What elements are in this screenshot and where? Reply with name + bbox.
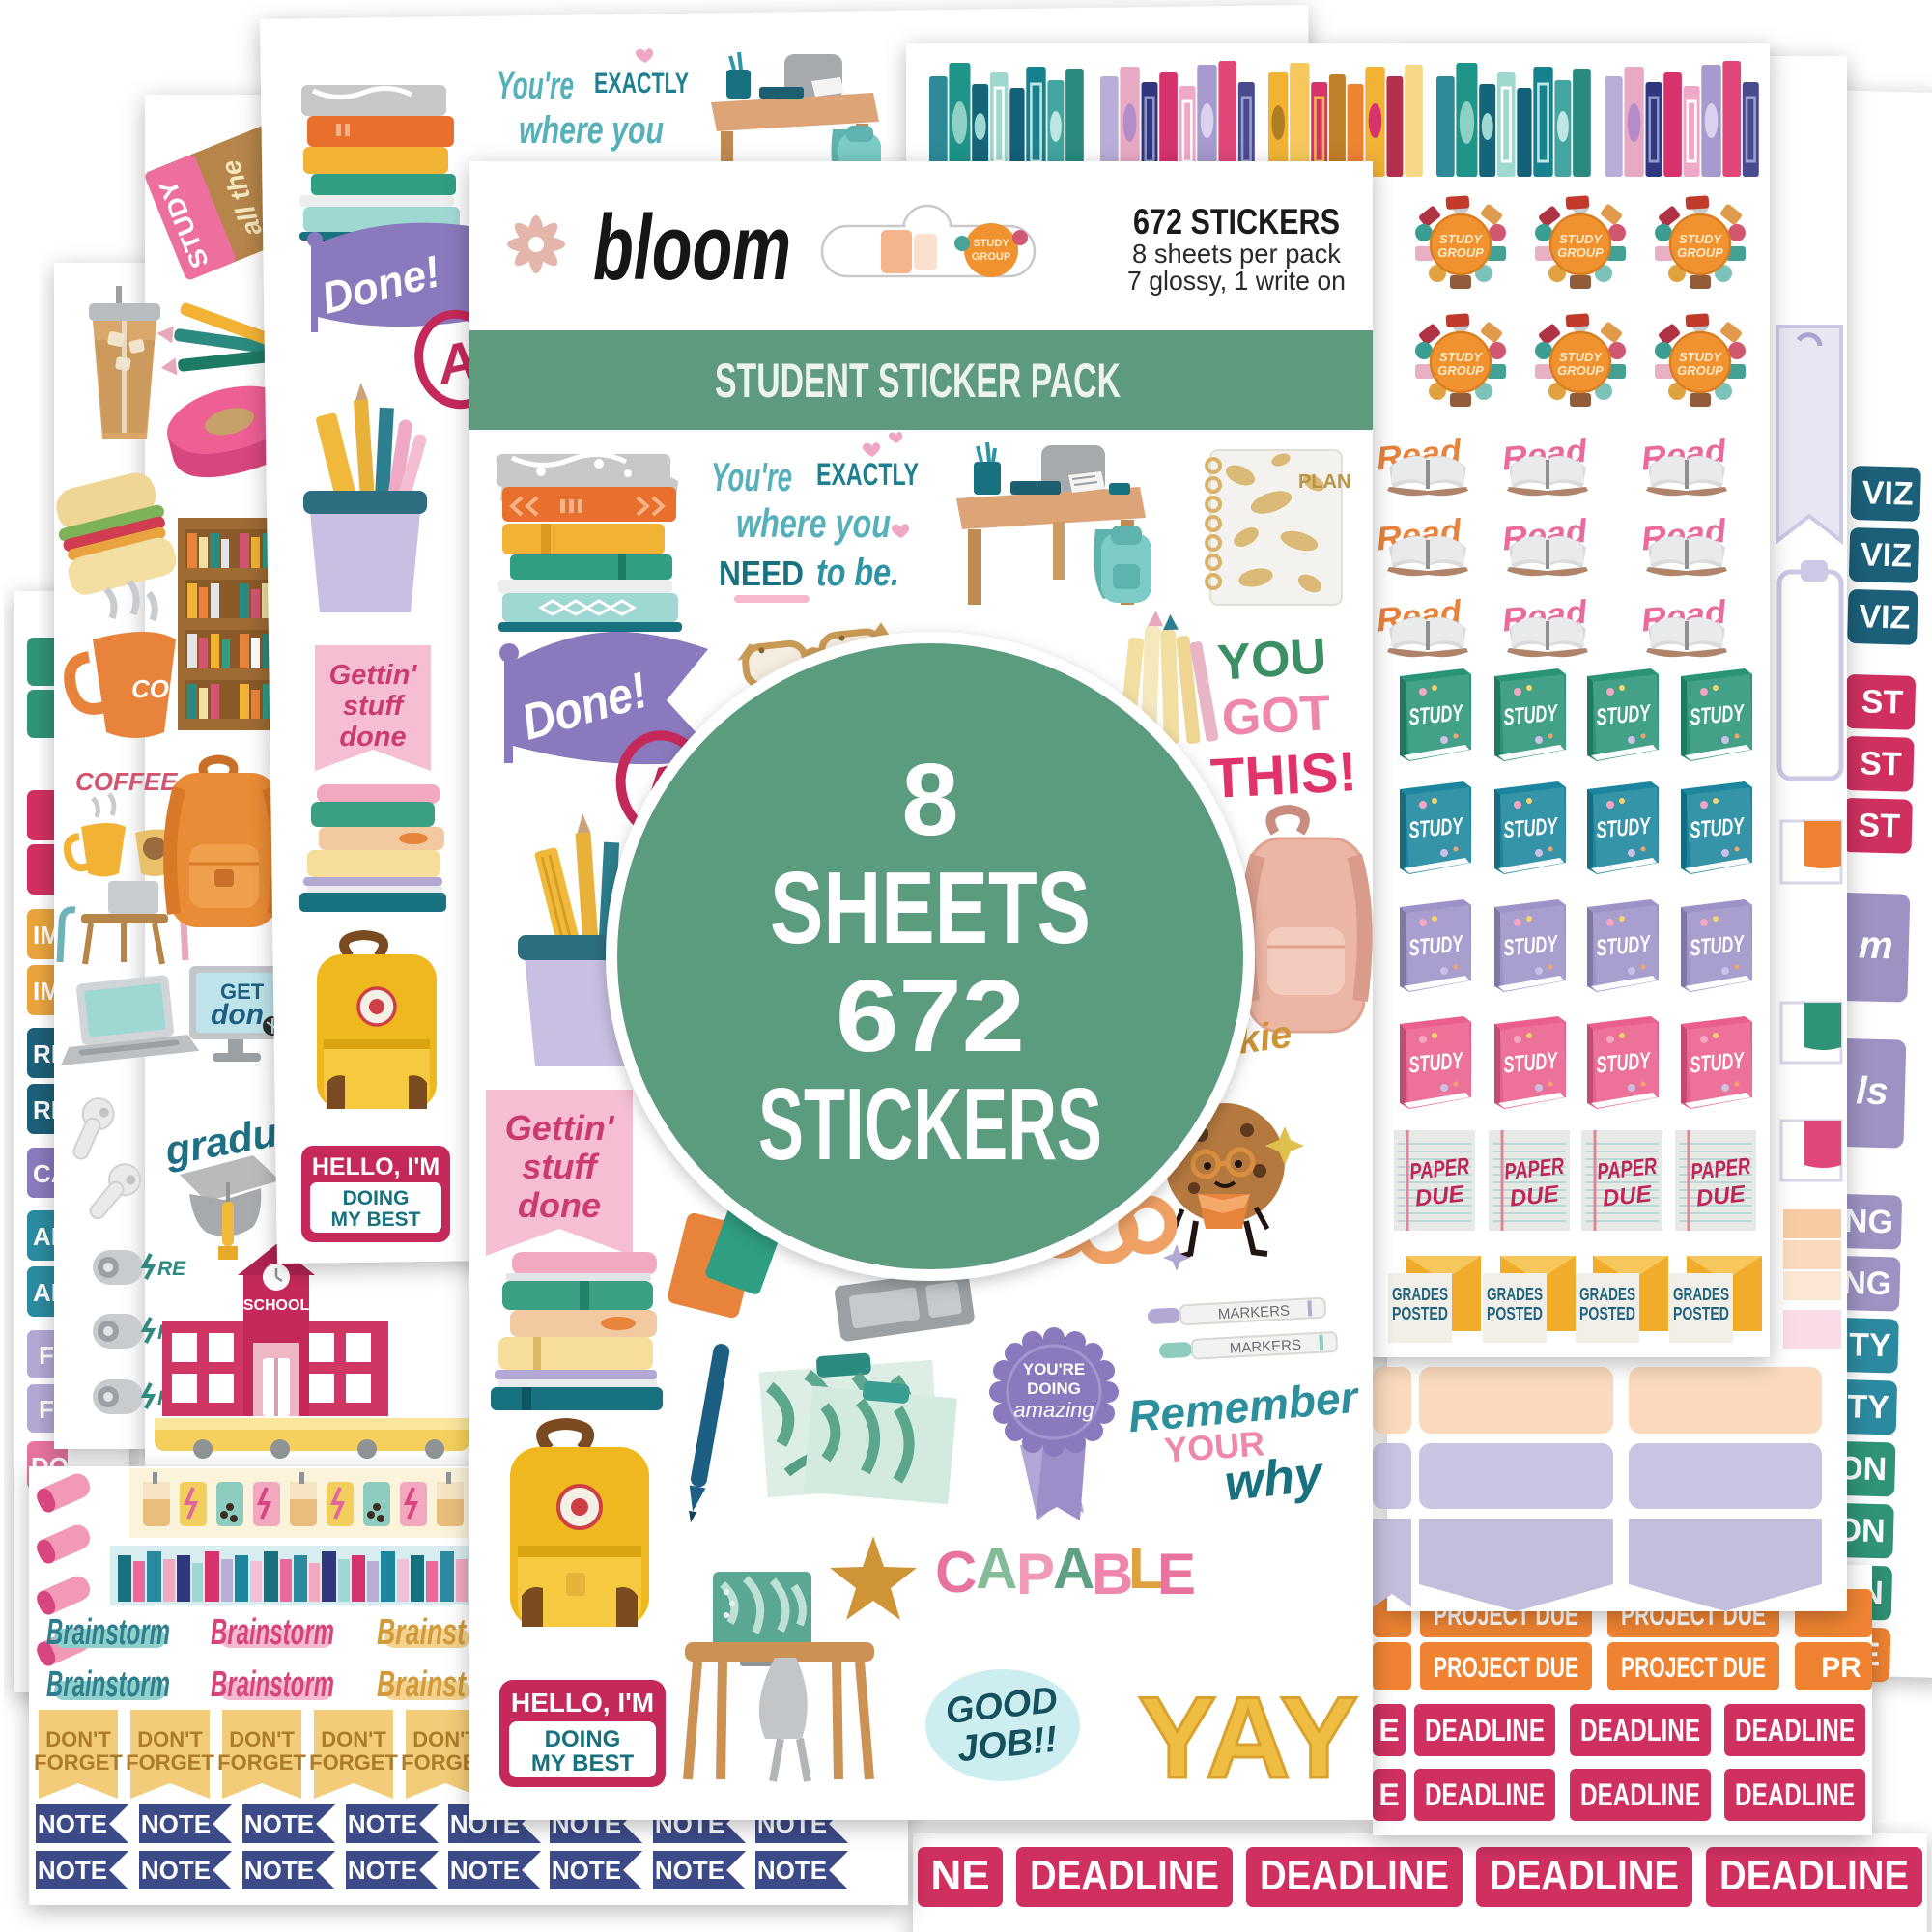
svg-text:DEADLINE: DEADLINE (1580, 1777, 1700, 1812)
svg-text:VIZ: VIZ (1859, 598, 1911, 636)
svg-text:SCHOOL: SCHOOL (243, 1297, 310, 1314)
svg-text:to be.: to be. (816, 552, 899, 594)
svg-text:RE: RE (157, 1258, 186, 1280)
svg-text:STUDY: STUDY (973, 238, 1009, 249)
svg-text:done: done (339, 722, 406, 753)
svg-text:YOU'RE: YOU'RE (1023, 1360, 1086, 1378)
svg-text:EXACTLY: EXACTLY (594, 68, 689, 99)
svg-text:ST: ST (1860, 745, 1903, 782)
svg-text:Brainstorm: Brainstorm (211, 1664, 334, 1705)
svg-text:E: E (1378, 1777, 1399, 1812)
svg-text:DEADLINE: DEADLINE (1030, 1852, 1219, 1899)
svg-text:Brainstorm: Brainstorm (211, 1612, 334, 1653)
svg-text:PROJECT DUE: PROJECT DUE (1434, 1652, 1578, 1684)
svg-text:DEADLINE: DEADLINE (1719, 1852, 1909, 1899)
svg-text:PLAN: PLAN (1298, 471, 1350, 493)
svg-text:Gettin': Gettin' (505, 1108, 615, 1148)
svg-text:MY BEST: MY BEST (331, 1208, 421, 1231)
svg-text:DEADLINE: DEADLINE (1490, 1852, 1679, 1899)
svg-text:A: A (1053, 1536, 1094, 1601)
svg-text:A: A (976, 1536, 1017, 1601)
svg-text:C: C (935, 1540, 977, 1605)
svg-text:NG: NG (1843, 1203, 1893, 1240)
svg-text:why: why (1222, 1446, 1328, 1513)
svg-text:DEADLINE: DEADLINE (1580, 1713, 1700, 1747)
svg-text:where you: where you (519, 109, 664, 152)
svg-text:VIZ: VIZ (1861, 536, 1913, 574)
svg-text:PR: PR (1821, 1652, 1861, 1684)
svg-text:STUDENT STICKER PACK: STUDENT STICKER PACK (715, 354, 1121, 408)
svg-text:STICKERS: STICKERS (758, 1067, 1102, 1181)
svg-text:bloom: bloom (593, 196, 791, 299)
svg-text:672 STICKERS: 672 STICKERS (1133, 202, 1340, 241)
svg-text:E: E (1378, 1713, 1399, 1747)
svg-text:done: done (518, 1185, 601, 1225)
svg-text:where you: where you (736, 500, 891, 546)
svg-text:DEADLINE: DEADLINE (1735, 1777, 1855, 1812)
svg-text:F: F (39, 1341, 54, 1370)
svg-text:THIS!: THIS! (1209, 740, 1359, 810)
svg-text:GOT: GOT (1220, 685, 1332, 747)
svg-text:GROUP: GROUP (972, 251, 1010, 263)
svg-text:7 glossy, 1 write on: 7 glossy, 1 write on (1127, 266, 1346, 296)
svg-text:YAY: YAY (1138, 1673, 1358, 1803)
svg-text:Brainst: Brainst (377, 1612, 467, 1653)
svg-text:don: don (211, 999, 264, 1031)
svg-text:PROJECT DUE: PROJECT DUE (1621, 1652, 1766, 1684)
svg-text:EXACTLY: EXACTLY (816, 457, 919, 492)
svg-text:NG: NG (1842, 1264, 1892, 1302)
svg-text:MY BEST: MY BEST (531, 1750, 635, 1776)
svg-text:YOU: YOU (1216, 628, 1328, 692)
svg-text:You're: You're (711, 454, 792, 499)
svg-text:stuff: stuff (522, 1147, 599, 1186)
svg-text:VIZ: VIZ (1861, 474, 1914, 512)
svg-text:DEADLINE: DEADLINE (1260, 1852, 1449, 1899)
svg-text:ls: ls (1856, 1069, 1889, 1113)
svg-text:672: 672 (836, 959, 1025, 1073)
svg-text:ST: ST (1858, 807, 1901, 844)
svg-text:Brainst: Brainst (377, 1664, 467, 1705)
svg-text:F: F (39, 1395, 54, 1424)
svg-text:Brainstorm: Brainstorm (46, 1664, 170, 1705)
svg-text:DOING: DOING (545, 1726, 621, 1752)
svg-text:B: B (1092, 1542, 1133, 1606)
svg-text:DEADLINE: DEADLINE (1425, 1713, 1545, 1747)
svg-text:m: m (1859, 923, 1894, 967)
svg-text:8: 8 (902, 743, 959, 857)
svg-text:DOING: DOING (343, 1187, 410, 1209)
svg-text:HELLO, I'M: HELLO, I'M (511, 1688, 654, 1718)
svg-text:Gettin': Gettin' (329, 660, 418, 691)
svg-text:amazing: amazing (1013, 1398, 1094, 1422)
svg-text:DOING: DOING (1027, 1379, 1081, 1398)
svg-text:DEADLINE: DEADLINE (1735, 1713, 1855, 1747)
svg-text:DEADLINE: DEADLINE (1425, 1777, 1545, 1812)
svg-text:ITY: ITY (1839, 1326, 1891, 1364)
svg-text:ST: ST (1861, 683, 1904, 721)
svg-text:E: E (1157, 1542, 1196, 1606)
svg-text:NEED: NEED (719, 554, 804, 593)
svg-text:You're: You're (497, 65, 574, 107)
svg-text:SHEETS: SHEETS (770, 851, 1091, 965)
svg-text:HELLO, I'M: HELLO, I'M (312, 1153, 440, 1180)
svg-text:P: P (1016, 1542, 1055, 1606)
svg-text:NE: NE (930, 1852, 989, 1899)
svg-text:COFFEE: COFFEE (75, 767, 178, 796)
svg-text:8 sheets per pack: 8 sheets per pack (1132, 239, 1342, 269)
svg-text:stuff: stuff (343, 691, 407, 722)
svg-text:Brainstorm: Brainstorm (46, 1612, 170, 1653)
